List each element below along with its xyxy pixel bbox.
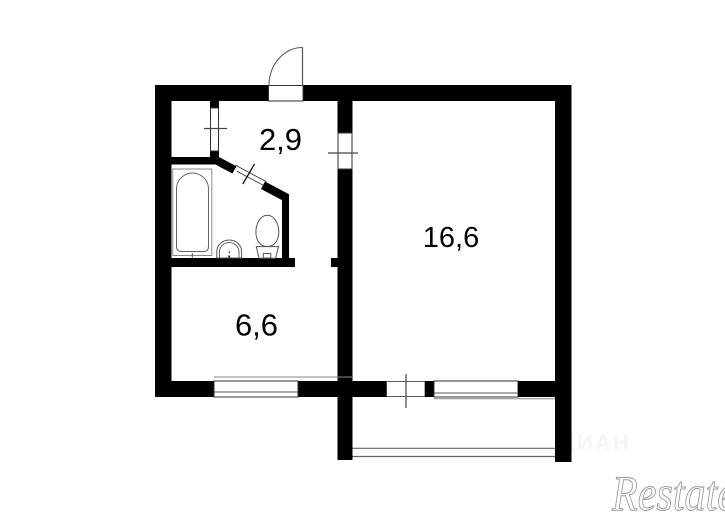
svg-text:Restate: Restate bbox=[611, 465, 725, 513]
svg-text:16,6: 16,6 bbox=[423, 222, 479, 254]
svg-text:2,9: 2,9 bbox=[259, 122, 302, 157]
svg-text:6,6: 6,6 bbox=[235, 308, 278, 343]
